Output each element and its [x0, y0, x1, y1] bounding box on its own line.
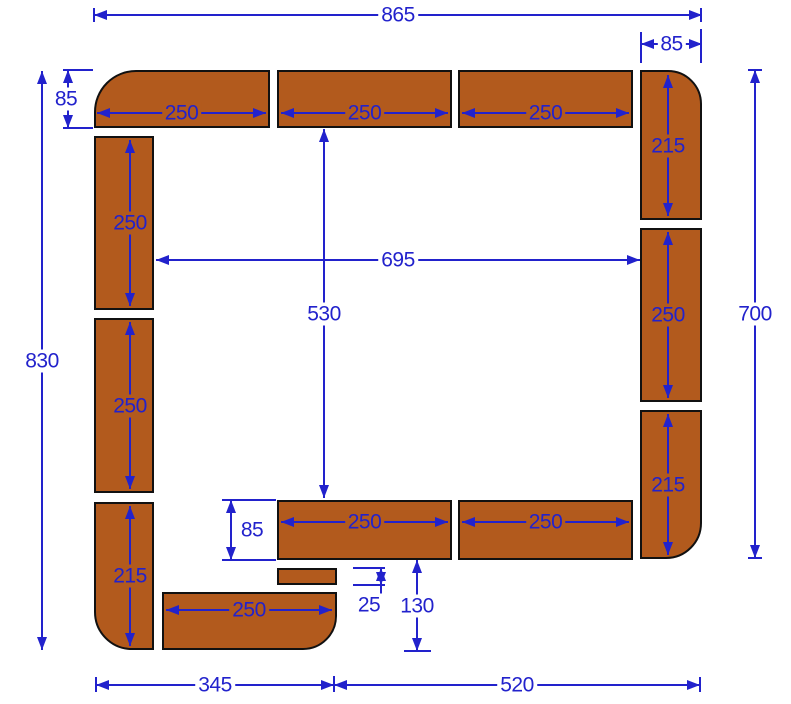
- arrowhead-len-left-3-start: [125, 506, 135, 519]
- arrowhead-len-top-3-start: [462, 108, 475, 118]
- arrowhead-edge-height-start: [226, 500, 236, 513]
- arrowhead-len-top-2-end: [435, 108, 448, 118]
- dim-label-opening-height: 130: [397, 594, 437, 617]
- arrowhead-len-right-3-start: [663, 414, 673, 427]
- dim-label-corner-width: 85: [657, 33, 685, 56]
- dim-label-len-top-2: 250: [345, 102, 385, 125]
- arrowhead-len-left-3-end: [125, 633, 135, 646]
- arrowhead-bottom-left-width-start: [96, 680, 109, 690]
- cutting-layout-diagram: 8658585830700695530852513034552025025025…: [0, 0, 791, 704]
- dim-label-len-left-1: 250: [110, 212, 150, 235]
- arrowhead-overall-width-start: [94, 10, 107, 20]
- arrowhead-len-top-1-start: [97, 108, 110, 118]
- arrowhead-inner-height-end: [319, 485, 329, 498]
- dim-label-inner-height: 530: [304, 302, 344, 325]
- arrowhead-opening-height-end: [412, 638, 422, 651]
- dim-label-bottom-left-width: 345: [195, 674, 235, 697]
- arrowhead-corner-width-start: [641, 39, 654, 49]
- arrowhead-len-bottom-left-end: [319, 605, 332, 615]
- arrowhead-corner-height-start: [63, 70, 73, 83]
- arrowhead-len-right-1-end: [663, 203, 673, 216]
- arrowhead-len-bottom-1-end: [435, 517, 448, 527]
- arrowhead-len-left-1-end: [125, 293, 135, 306]
- arrowhead-spacer-thickness-end: [376, 572, 386, 585]
- arrowhead-inner-height-start: [319, 129, 329, 142]
- dim-label-len-top-1: 250: [162, 102, 202, 125]
- arrowhead-bottom-right-width-start: [334, 680, 347, 690]
- arrowhead-len-top-1-end: [253, 108, 266, 118]
- arrowhead-len-bottom-2-start: [462, 517, 475, 527]
- dim-label-right-height: 700: [735, 303, 775, 326]
- arrowhead-len-bottom-2-end: [616, 517, 629, 527]
- dim-label-bottom-right-width: 520: [497, 674, 537, 697]
- dim-label-len-bottom-left: 250: [229, 599, 269, 622]
- dim-label-overall-height: 830: [22, 349, 62, 372]
- arrowhead-len-left-2-start: [125, 322, 135, 335]
- dim-label-len-left-2: 250: [110, 394, 150, 417]
- arrowhead-bottom-right-width-end: [687, 680, 700, 690]
- arrowhead-overall-height-end: [37, 637, 47, 650]
- dim-label-len-bottom-1: 250: [345, 511, 385, 534]
- arrowhead-len-right-2-start: [663, 232, 673, 245]
- arrowhead-inner-width-start: [156, 255, 169, 265]
- dim-label-len-top-3: 250: [526, 102, 566, 125]
- arrowhead-overall-width-end: [689, 10, 702, 20]
- arrowhead-right-height-end: [750, 545, 760, 558]
- arrowhead-len-top-3-end: [616, 108, 629, 118]
- arrowhead-bottom-left-width-end: [321, 680, 334, 690]
- arrowhead-opening-height-start: [412, 560, 422, 573]
- arrowhead-len-bottom-1-start: [281, 517, 294, 527]
- arrowhead-len-right-3-end: [663, 542, 673, 555]
- dim-label-len-right-3: 215: [648, 473, 688, 496]
- arrowhead-len-left-2-end: [125, 476, 135, 489]
- arrowhead-len-top-2-start: [281, 108, 294, 118]
- dim-label-inner-width: 695: [378, 249, 418, 272]
- dim-label-len-left-3: 215: [110, 565, 150, 588]
- arrowhead-len-left-1-start: [125, 140, 135, 153]
- dim-label-len-bottom-2: 250: [526, 511, 566, 534]
- piece-small-spacer-piece: [277, 568, 337, 585]
- dim-label-len-right-2: 250: [648, 304, 688, 327]
- dim-label-overall-width: 865: [378, 4, 418, 27]
- dim-label-spacer-thickness: 25: [355, 593, 383, 616]
- arrowhead-right-height-start: [750, 70, 760, 83]
- arrowhead-len-right-2-end: [663, 385, 673, 398]
- dim-label-edge-height: 85: [238, 519, 266, 542]
- dim-label-corner-height: 85: [52, 88, 80, 111]
- arrowhead-inner-width-end: [627, 255, 640, 265]
- arrowhead-corner-height-end: [63, 115, 73, 128]
- arrowhead-edge-height-end: [226, 547, 236, 560]
- arrowhead-len-bottom-left-start: [166, 605, 179, 615]
- arrowhead-len-right-1-start: [663, 75, 673, 88]
- arrowhead-corner-width-end: [689, 39, 702, 49]
- dim-label-len-right-1: 215: [648, 134, 688, 157]
- arrowhead-overall-height-start: [37, 71, 47, 84]
